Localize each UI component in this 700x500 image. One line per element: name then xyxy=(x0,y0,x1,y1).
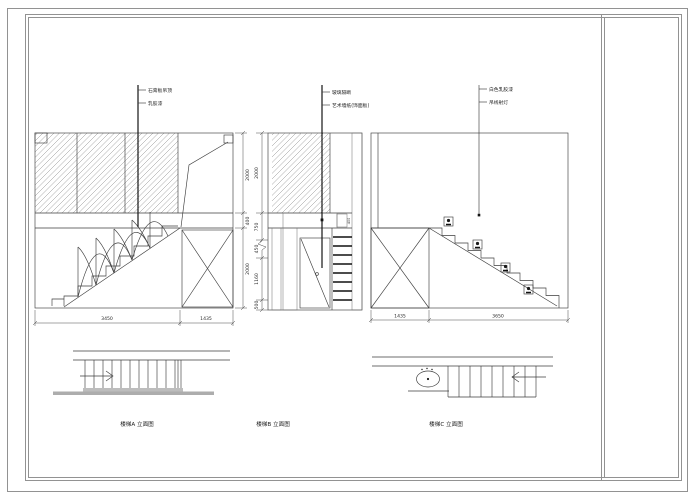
grille-end-block xyxy=(337,214,347,227)
plan-a xyxy=(53,351,230,395)
dim-value: 750 xyxy=(254,223,260,232)
annotation-label: 吊线射灯 xyxy=(489,99,508,106)
caption-elevation-b: 楼梯B 立面图 xyxy=(256,420,290,428)
elevation-b: 400 玻璃隔断 艺术墙纸(饰面板) xyxy=(254,85,369,312)
dim-value: 1160 xyxy=(254,273,260,285)
first-step xyxy=(52,299,64,306)
annotation-label: 艺术墙纸(饰面板) xyxy=(332,102,369,109)
wall-lamp-icon xyxy=(501,263,510,272)
stair-section xyxy=(332,228,352,310)
door-knob xyxy=(316,273,319,276)
annotation-label: 玻璃隔断 xyxy=(332,89,351,96)
dimension-chain-right: 2000 400 2000 xyxy=(235,131,251,310)
elevation-a: 石膏板吊顶 乳胶漆 2000 400 2000 3450 xyxy=(33,85,251,326)
elevation-c-outline xyxy=(371,133,568,308)
inner-frame-outer xyxy=(26,15,682,481)
outer-border xyxy=(8,9,688,492)
drawing-captions: 楼梯A 立面图 楼梯B 立面图 楼梯C 立面图 xyxy=(120,420,463,428)
direction-arrow-icon xyxy=(512,372,546,382)
door xyxy=(300,238,330,308)
dimension-chain-bottom: 3450 1435 xyxy=(33,310,235,326)
wall-lamps xyxy=(444,217,533,294)
caption-elevation-c: 楼梯C 立面图 xyxy=(429,420,463,428)
crossed-box xyxy=(182,230,233,307)
elevation-c: 白色乳胶漆 吊线射灯 1435 3650 xyxy=(369,85,570,323)
dim-value: 1435 xyxy=(394,314,406,320)
ceiling-fold-line xyxy=(181,142,228,227)
plan-treads xyxy=(85,360,181,391)
inner-frame-inner xyxy=(29,18,679,478)
annotation-label: 乳胶漆 xyxy=(148,100,163,107)
dim-value: 3450 xyxy=(101,316,113,322)
dim-value: 2000 xyxy=(254,167,260,179)
dim-value: 2000 xyxy=(245,169,251,181)
leader-dot xyxy=(321,219,324,222)
stair-stringer xyxy=(64,228,180,307)
annotation-label: 石膏板吊顶 xyxy=(148,87,172,94)
sheet-frame xyxy=(8,9,688,492)
corner-block xyxy=(224,135,233,143)
stair-stringer xyxy=(429,228,557,306)
dim-value: 1435 xyxy=(200,316,212,322)
hatched-wall xyxy=(272,133,330,213)
decorative-railing xyxy=(78,212,168,297)
wall-fill-bar xyxy=(53,392,214,396)
dimension-chain-bottom: 1435 3650 xyxy=(369,310,570,323)
dim-value: 450 xyxy=(254,245,260,254)
wall-lamp-icon xyxy=(444,217,453,226)
leader-dot xyxy=(478,214,481,217)
plan-treads xyxy=(448,366,536,397)
dim-value: 400 xyxy=(245,217,251,226)
hatched-wall xyxy=(35,133,178,213)
grille-band xyxy=(283,213,337,228)
wall-fill-bar xyxy=(83,388,183,392)
textured-wall-strip xyxy=(272,228,281,310)
dim-value: 2000 xyxy=(245,263,251,275)
dimension-chain-left: 2000 750 450 1160 500 xyxy=(254,131,268,312)
planter-icon xyxy=(408,368,449,391)
annotation-label: 白色乳胶漆 xyxy=(489,86,513,93)
textured-wall-strip xyxy=(283,228,297,310)
wall-lamp-icon xyxy=(473,240,482,249)
cad-sheet: 石膏板吊顶 乳胶漆 2000 400 2000 3450 xyxy=(0,0,700,500)
dim-value: 3650 xyxy=(492,314,504,320)
dim-value: 400 xyxy=(347,218,351,224)
wall-section-strip xyxy=(352,133,362,310)
dim-value: 500 xyxy=(254,301,260,310)
plan-c xyxy=(372,357,553,397)
caption-elevation-a: 楼梯A 立面图 xyxy=(120,420,154,428)
crossed-box xyxy=(371,228,429,308)
